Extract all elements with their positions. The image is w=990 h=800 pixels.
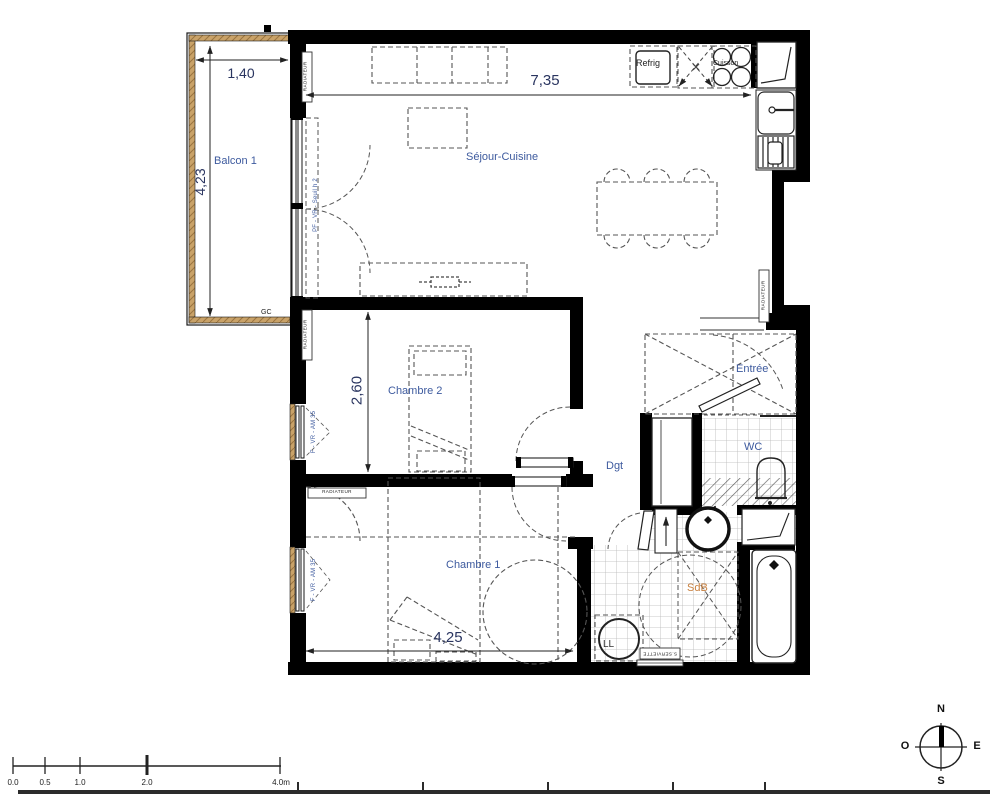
gc-annotation: GC (261, 309, 272, 316)
compass-south-label: S (933, 776, 949, 787)
bedroom2-window (290, 404, 330, 460)
scale-label-3: 2.0 (137, 779, 157, 787)
room-label-bathroom: SdB (687, 583, 708, 594)
scale-label-1: 0.5 (35, 779, 55, 787)
radiator-label-1: RADIATEUR (304, 52, 309, 100)
bathtub-icon (752, 550, 796, 663)
scale-label-0: 0.0 (3, 779, 23, 787)
compass-north-label: N (933, 704, 949, 715)
fridge-label: Refrig (636, 59, 660, 68)
plan-drawing (0, 0, 990, 800)
dimension-balcony-width: 1,40 (209, 66, 273, 80)
title-block-edge (18, 782, 990, 794)
floor-plan: Balcon 1 Séjour-Cuisine Chambre 2 Chambr… (0, 0, 990, 800)
towel-radiator-label: S.SERVIETTE (641, 651, 679, 656)
compass-west-label: O (897, 741, 913, 752)
room-label-balcony: Balcon 1 (214, 156, 257, 167)
window-label-pf: PF - VR - Seuil h 2 (313, 160, 319, 250)
cooktop-label: Cuisson (713, 60, 738, 67)
room-label-living: Séjour-Cuisine (466, 152, 538, 163)
bedroom2-door (516, 407, 573, 468)
compass-east-label: E (969, 741, 985, 752)
radiator-label-2: RADIATEUR (304, 310, 309, 358)
room-label-bedroom1: Chambre 1 (446, 560, 500, 571)
kitchen-corner-cabinet (757, 42, 796, 88)
scale-label-2: 1.0 (70, 779, 90, 787)
room-label-bedroom2: Chambre 2 (388, 386, 442, 397)
balcony-french-door (291, 116, 303, 300)
scale-label-4: 4.0m (266, 779, 296, 787)
washbasin-icon (687, 506, 729, 550)
washer-label: LL (603, 640, 614, 650)
bedroom1-window (290, 547, 330, 613)
room-label-hallway: Dgt (606, 461, 623, 472)
bathroom-door (608, 511, 654, 550)
window-label-f-bedroom2: F - VR - AM 35 (311, 397, 317, 467)
window-label-f-bedroom1: F - VR - AM 35 (311, 545, 317, 615)
dimension-living-width: 7,35 (520, 73, 570, 88)
bathroom-vanity-cabinet (655, 509, 677, 553)
radiator-label-3: RADIATEUR (309, 490, 365, 495)
room-label-entry: Entrée (736, 364, 768, 375)
living-furniture (360, 108, 717, 296)
cooktop-icon (714, 48, 751, 87)
kitchen-sink (756, 90, 796, 170)
room-label-wc: WC (744, 442, 762, 453)
scale-bar (13, 755, 281, 775)
wc-door-line (704, 415, 796, 416)
bathroom-corner-cabinet (742, 509, 795, 545)
dimension-balcony-length: 4,23 (193, 162, 207, 202)
appliance-reservation-icon (679, 47, 712, 86)
compass-rose (915, 723, 967, 771)
wc-closet (652, 418, 692, 506)
bedroom2-furniture (409, 346, 471, 472)
tv-icon (419, 277, 471, 287)
dimension-bedroom2-width: 2,60 (350, 371, 365, 411)
radiator-label-4: RADIATEUR (762, 271, 767, 319)
dimension-bedroom1-width: 4,25 (423, 630, 473, 645)
